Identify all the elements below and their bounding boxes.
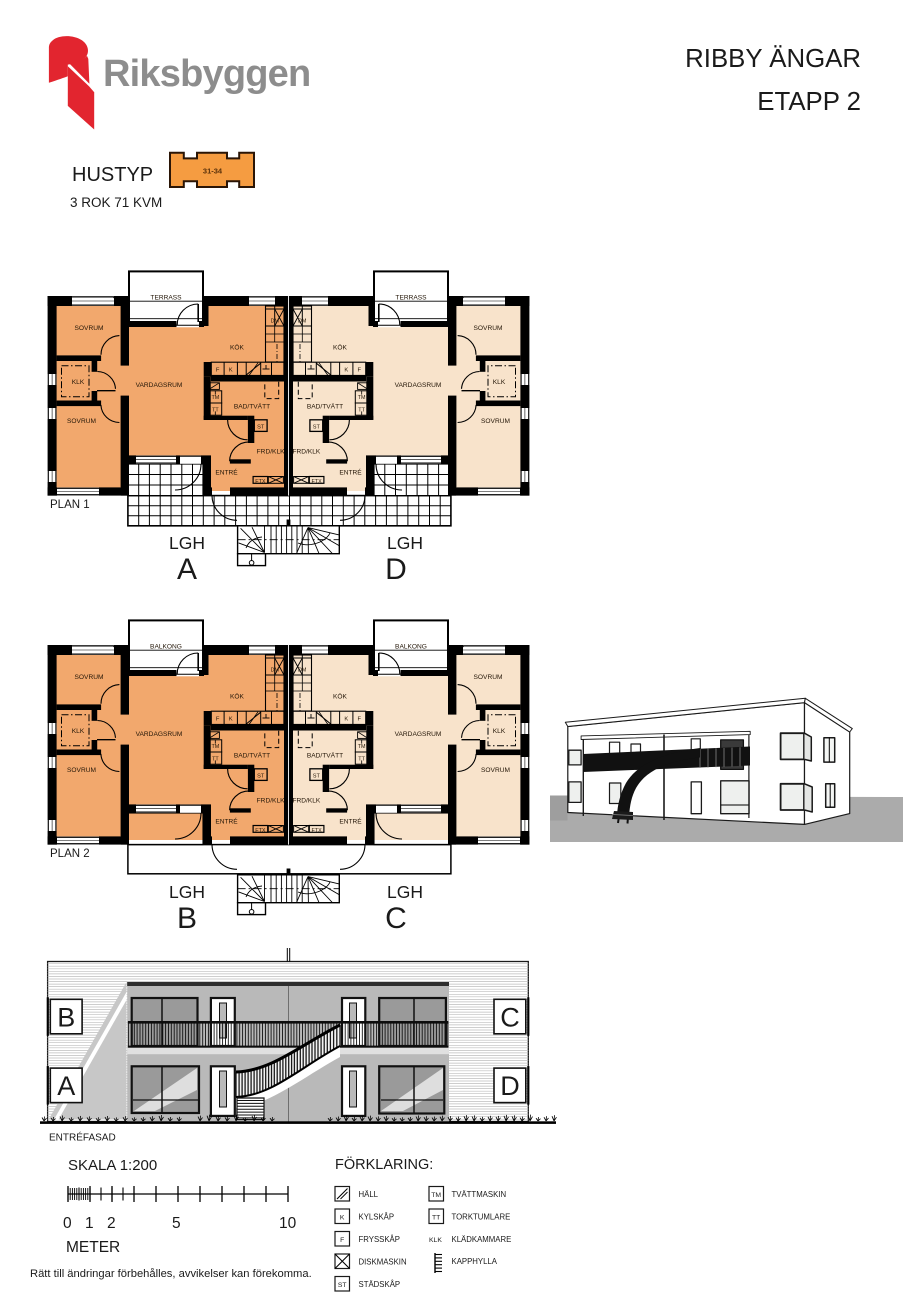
svg-text:VARDAGSRUM: VARDAGSRUM bbox=[136, 382, 183, 389]
svg-text:FTX: FTX bbox=[312, 479, 323, 485]
svg-text:KYLSKÅP: KYLSKÅP bbox=[359, 1213, 395, 1222]
svg-text:KLK: KLK bbox=[72, 728, 85, 735]
svg-text:A: A bbox=[57, 1071, 75, 1101]
svg-text:TT: TT bbox=[358, 408, 365, 414]
svg-text:DM: DM bbox=[271, 668, 280, 674]
svg-text:LGH: LGH bbox=[169, 533, 205, 553]
svg-text:TT: TT bbox=[358, 757, 365, 763]
svg-text:TT: TT bbox=[212, 757, 219, 763]
svg-text:BAD/TVÄTT: BAD/TVÄTT bbox=[234, 751, 270, 759]
svg-text:K: K bbox=[344, 368, 348, 374]
svg-text:31-34: 31-34 bbox=[203, 166, 223, 175]
svg-text:ST: ST bbox=[257, 773, 265, 779]
svg-text:LGH: LGH bbox=[169, 882, 205, 902]
svg-text:ST: ST bbox=[257, 424, 265, 430]
svg-text:F: F bbox=[216, 717, 220, 723]
svg-text:F: F bbox=[340, 1237, 344, 1244]
svg-text:0: 0 bbox=[63, 1215, 72, 1232]
svg-text:SOVRUM: SOVRUM bbox=[474, 325, 503, 332]
svg-text:DM: DM bbox=[298, 319, 307, 325]
svg-text:ENTRÉ: ENTRÉ bbox=[339, 468, 362, 477]
svg-text:ST: ST bbox=[313, 773, 321, 779]
svg-text:A: A bbox=[177, 553, 197, 586]
svg-text:SOVRUM: SOVRUM bbox=[67, 418, 96, 425]
svg-text:SOVRUM: SOVRUM bbox=[474, 674, 503, 681]
svg-text:HUSTYP: HUSTYP bbox=[72, 164, 153, 186]
svg-text:PLAN 2: PLAN 2 bbox=[50, 848, 90, 860]
svg-text:DM: DM bbox=[298, 668, 307, 674]
svg-text:SKALA 1:200: SKALA 1:200 bbox=[68, 1157, 157, 1174]
svg-text:LGH: LGH bbox=[387, 882, 423, 902]
svg-text:FRD/KLK: FRD/KLK bbox=[292, 797, 320, 804]
svg-text:K: K bbox=[344, 717, 348, 723]
svg-text:F: F bbox=[358, 717, 362, 723]
svg-text:B: B bbox=[177, 902, 197, 935]
svg-text:FRD/KLK: FRD/KLK bbox=[257, 797, 285, 804]
svg-text:KLK: KLK bbox=[429, 1237, 442, 1244]
svg-text:STÄDSKÅP: STÄDSKÅP bbox=[359, 1280, 401, 1289]
svg-text:C: C bbox=[385, 902, 407, 935]
svg-text:SOVRUM: SOVRUM bbox=[481, 767, 510, 774]
svg-text:5: 5 bbox=[172, 1215, 181, 1232]
svg-text:B: B bbox=[57, 1002, 75, 1032]
svg-text:TVÄTTMASKIN: TVÄTTMASKIN bbox=[452, 1190, 507, 1199]
svg-text:TT: TT bbox=[212, 408, 219, 414]
svg-text:ENTRÉ: ENTRÉ bbox=[339, 817, 362, 826]
svg-text:BAD/TVÄTT: BAD/TVÄTT bbox=[307, 751, 343, 759]
svg-text:TM: TM bbox=[431, 1192, 441, 1199]
svg-text:C: C bbox=[500, 1002, 520, 1032]
svg-text:FTX: FTX bbox=[255, 828, 266, 834]
svg-text:SOVRUM: SOVRUM bbox=[67, 767, 96, 774]
svg-text:METER: METER bbox=[66, 1239, 120, 1256]
svg-text:ENTRÉ: ENTRÉ bbox=[215, 468, 238, 477]
svg-text:HÄLL: HÄLL bbox=[359, 1190, 379, 1199]
svg-text:F: F bbox=[216, 368, 220, 374]
svg-text:KLÄDKAMMARE: KLÄDKAMMARE bbox=[452, 1235, 512, 1244]
svg-text:FRYSSKÅP: FRYSSKÅP bbox=[359, 1235, 400, 1244]
svg-text:ETAPP 2: ETAPP 2 bbox=[757, 88, 861, 116]
svg-text:VARDAGSRUM: VARDAGSRUM bbox=[395, 382, 442, 389]
svg-text:ST: ST bbox=[313, 424, 321, 430]
svg-text:BAD/TVÄTT: BAD/TVÄTT bbox=[307, 402, 343, 410]
svg-text:KÖK: KÖK bbox=[230, 344, 245, 352]
svg-text:TM: TM bbox=[358, 395, 366, 401]
svg-text:KLK: KLK bbox=[72, 379, 85, 386]
svg-text:TERRASS: TERRASS bbox=[395, 294, 427, 301]
svg-text:10: 10 bbox=[279, 1215, 297, 1232]
svg-text:FTX: FTX bbox=[312, 828, 323, 834]
svg-text:K: K bbox=[340, 1214, 345, 1221]
svg-text:SOVRUM: SOVRUM bbox=[75, 325, 104, 332]
svg-text:KLK: KLK bbox=[493, 728, 506, 735]
svg-text:KÖK: KÖK bbox=[333, 693, 348, 701]
svg-text:ST: ST bbox=[338, 1282, 347, 1289]
svg-text:VARDAGSRUM: VARDAGSRUM bbox=[136, 731, 183, 738]
svg-text:TM: TM bbox=[212, 395, 220, 401]
svg-text:TORKTUMLARE: TORKTUMLARE bbox=[452, 1213, 511, 1222]
svg-text:ENTRÉ: ENTRÉ bbox=[215, 817, 238, 826]
svg-text:K: K bbox=[229, 717, 233, 723]
svg-text:LGH: LGH bbox=[387, 533, 423, 553]
svg-text:SOVRUM: SOVRUM bbox=[481, 418, 510, 425]
svg-text:ENTRÉFASAD: ENTRÉFASAD bbox=[49, 1131, 116, 1144]
svg-text:3 ROK 71 KVM: 3 ROK 71 KVM bbox=[70, 195, 162, 210]
svg-text:FÖRKLARING:: FÖRKLARING: bbox=[335, 1155, 433, 1173]
svg-text:FRD/KLK: FRD/KLK bbox=[292, 448, 320, 455]
svg-text:SOVRUM: SOVRUM bbox=[75, 674, 104, 681]
svg-text:2: 2 bbox=[107, 1215, 116, 1232]
svg-text:BAD/TVÄTT: BAD/TVÄTT bbox=[234, 402, 270, 410]
svg-text:Riksbyggen: Riksbyggen bbox=[103, 53, 310, 95]
svg-text:DM: DM bbox=[271, 319, 280, 325]
svg-text:KÖK: KÖK bbox=[230, 693, 245, 701]
svg-text:K: K bbox=[229, 368, 233, 374]
svg-text:KÖK: KÖK bbox=[333, 344, 348, 352]
svg-text:TM: TM bbox=[358, 744, 366, 750]
svg-text:KAPPHYLLA: KAPPHYLLA bbox=[452, 1257, 498, 1266]
svg-text:FTX: FTX bbox=[255, 479, 266, 485]
svg-text:BALKONG: BALKONG bbox=[395, 643, 427, 650]
svg-text:BALKONG: BALKONG bbox=[150, 643, 182, 650]
svg-text:RIBBY ÄNGAR: RIBBY ÄNGAR bbox=[685, 45, 861, 73]
svg-text:VARDAGSRUM: VARDAGSRUM bbox=[395, 731, 442, 738]
svg-text:1: 1 bbox=[85, 1215, 94, 1232]
svg-text:PLAN 1: PLAN 1 bbox=[50, 499, 90, 511]
svg-text:TT: TT bbox=[432, 1214, 440, 1221]
svg-text:KLK: KLK bbox=[493, 379, 506, 386]
svg-text:FRD/KLK: FRD/KLK bbox=[257, 448, 285, 455]
svg-text:TM: TM bbox=[212, 744, 220, 750]
svg-text:TERRASS: TERRASS bbox=[150, 294, 182, 301]
svg-text:D: D bbox=[385, 553, 407, 586]
svg-text:D: D bbox=[500, 1071, 520, 1101]
svg-text:DISKMASKIN: DISKMASKIN bbox=[359, 1258, 407, 1267]
svg-text:F: F bbox=[358, 368, 362, 374]
svg-text:Rätt till ändringar förbehålle: Rätt till ändringar förbehålles, avvikel… bbox=[30, 1268, 312, 1280]
